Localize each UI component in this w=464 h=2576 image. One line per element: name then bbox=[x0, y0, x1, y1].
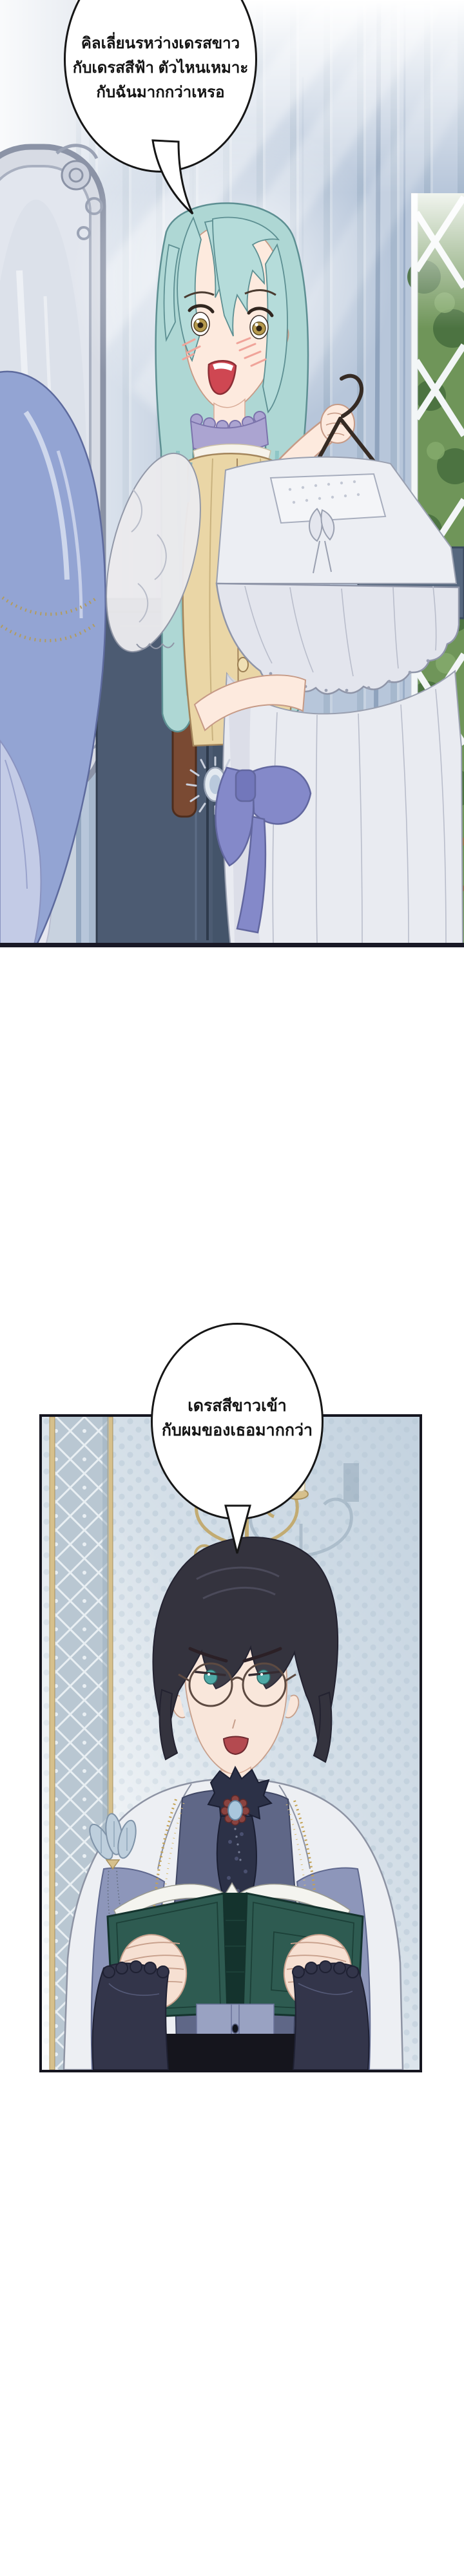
comic-page: คิลเลี่ยนรหว่างเดรสขาว กับเดรสสีฟ้า ตัวไ… bbox=[0, 0, 464, 2576]
bubble1-line2: กับเดรสสีฟ้า ตัวไหนเหมาะ bbox=[73, 56, 248, 80]
panel1-bottom-border bbox=[0, 943, 464, 947]
bubble1-line1: คิลเลี่ยนรหว่างเดรสขาว bbox=[73, 32, 248, 56]
speech-bubble-1-tail bbox=[145, 137, 203, 220]
speech-bubble-2-tail bbox=[213, 1501, 264, 1558]
bubble2-line1: เดรสสีขาวเข้า bbox=[162, 1394, 313, 1418]
panel1-artwork bbox=[0, 0, 464, 947]
bubble2-line2: กับผมของเธอมากกว่า bbox=[162, 1418, 313, 1443]
bubble1-line3: กับฉันมากกว่าเหรอ bbox=[73, 80, 248, 105]
speech-bubble-2: เดรสสีขาวเข้า กับผมของเธอมากกว่า bbox=[151, 1323, 324, 1520]
panel-1: คิลเลี่ยนรหว่างเดรสขาว กับเดรสสีฟ้า ตัวไ… bbox=[0, 0, 464, 947]
